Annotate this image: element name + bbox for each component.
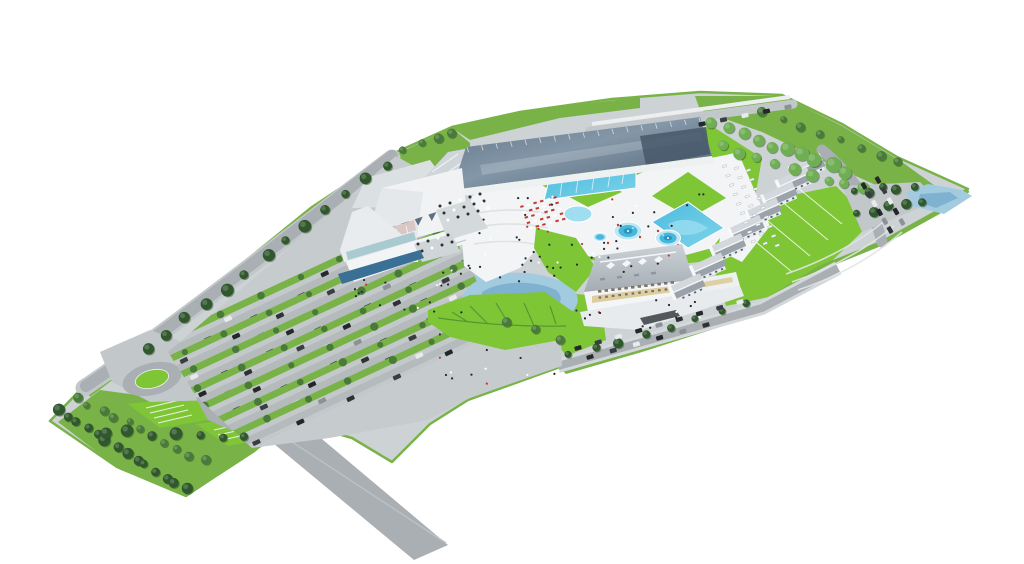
person-dot (630, 265, 632, 267)
person-dot (559, 266, 561, 268)
person-dot (551, 196, 553, 198)
person-dot (668, 304, 670, 306)
tree-highlight (743, 300, 746, 303)
hotel-window (665, 288, 668, 290)
hotel-window (657, 283, 660, 286)
table-dot (439, 205, 442, 208)
person-dot (603, 242, 605, 244)
person-dot (486, 383, 488, 385)
table-dot (417, 243, 420, 246)
person-dot (469, 267, 471, 269)
tree-highlight (74, 394, 78, 398)
tree-highlight (342, 191, 346, 195)
person-dot (548, 244, 550, 246)
tree-highlight (54, 405, 59, 410)
tree-highlight (614, 340, 619, 345)
person-dot (516, 236, 518, 238)
person-dot (440, 284, 442, 286)
tree-highlight (161, 440, 165, 444)
person-dot (478, 232, 480, 234)
tree-highlight (124, 449, 129, 454)
person-dot (647, 225, 649, 227)
person-dot (460, 273, 462, 275)
person-dot (610, 200, 612, 202)
person-dot (403, 308, 405, 310)
person-dot (481, 201, 483, 203)
tree-highlight (902, 200, 907, 205)
person-dot (620, 225, 622, 227)
tree-highlight (162, 331, 167, 336)
tree-highlight (828, 159, 835, 166)
tree-highlight (400, 147, 403, 150)
person-dot (589, 314, 591, 316)
tree-highlight (223, 285, 229, 291)
tree-highlight (808, 154, 815, 161)
tree-highlight (144, 345, 149, 350)
person-dot (361, 291, 363, 293)
hotel-window (638, 292, 641, 294)
person-dot (484, 368, 486, 370)
tree-highlight (171, 429, 177, 435)
person-dot (489, 237, 491, 239)
tree-highlight (300, 221, 306, 227)
tree-highlight (668, 325, 672, 329)
person-dot (698, 193, 700, 195)
person-dot (447, 283, 449, 285)
table-dot (447, 234, 450, 237)
tree-highlight (719, 141, 724, 146)
tree-highlight (164, 475, 168, 479)
person-dot (571, 244, 573, 246)
person-dot (450, 371, 452, 373)
person-dot (468, 265, 470, 267)
tree-highlight (912, 184, 915, 187)
tree-highlight (101, 407, 105, 411)
person-dot (668, 254, 670, 256)
person-dot (358, 292, 360, 294)
tree-highlight (557, 336, 561, 340)
tree-highlight (854, 211, 857, 214)
table-dot (479, 193, 482, 196)
tree-highlight (174, 446, 178, 450)
person-dot (615, 240, 617, 242)
tree-highlight (435, 135, 439, 139)
hotel-window (605, 296, 608, 298)
table-dot (441, 244, 444, 247)
person-dot (591, 257, 593, 259)
tree-highlight (565, 352, 568, 355)
tree-highlight (321, 206, 325, 210)
tree-highlight (781, 117, 784, 120)
tree-highlight (919, 199, 923, 203)
hotel-window (618, 288, 621, 291)
table-dot (463, 206, 466, 209)
tree-highlight (137, 426, 141, 430)
tree-highlight (170, 479, 175, 484)
tree-highlight (753, 154, 757, 158)
person-dot (649, 327, 651, 329)
tree-highlight (135, 457, 140, 462)
tree-highlight (740, 129, 745, 134)
tree-highlight (180, 313, 185, 318)
tree-highlight (758, 108, 762, 112)
person-dot (499, 276, 501, 278)
person-dot (584, 317, 586, 319)
person-dot (576, 263, 578, 265)
table-dot (473, 203, 476, 206)
tree-highlight (84, 403, 87, 406)
person-dot (598, 256, 600, 258)
person-dot (479, 266, 481, 268)
tree-highlight (807, 171, 813, 177)
tree-highlight (797, 124, 801, 128)
person-dot (686, 204, 688, 206)
tree-highlight (115, 444, 119, 448)
person-dot (599, 312, 601, 314)
hotel-window (658, 289, 661, 291)
tree-highlight (384, 163, 388, 167)
hotel-window (638, 285, 641, 288)
person-dot (552, 267, 554, 269)
person-dot (675, 311, 677, 313)
person-dot (556, 261, 558, 263)
tree-highlight (852, 188, 855, 191)
person-dot (526, 374, 528, 376)
hotel-window (631, 286, 634, 289)
tree-highlight (754, 136, 759, 141)
tree-highlight (790, 165, 796, 171)
tree-highlight (796, 148, 803, 155)
person-dot (612, 216, 614, 218)
hotel-window (624, 287, 627, 290)
tree-highlight (183, 484, 188, 489)
person-dot (551, 204, 553, 206)
hotel-window (598, 290, 601, 293)
tree-highlight (771, 160, 775, 164)
person-dot (581, 243, 583, 245)
tree-highlight (95, 431, 99, 435)
tree-highlight (870, 208, 875, 213)
person-dot (537, 228, 539, 230)
tree-highlight (878, 152, 882, 156)
tree-highlight (185, 453, 189, 457)
person-dot (530, 260, 532, 262)
person-dot (451, 377, 453, 379)
tree-highlight (127, 419, 130, 422)
person-dot (445, 374, 447, 376)
person-dot (655, 299, 657, 301)
tree-highlight (826, 178, 830, 182)
tree-highlight (241, 433, 245, 437)
site-plan-rendering (0, 0, 1024, 564)
tree-highlight (202, 456, 206, 460)
hotel-window (625, 293, 628, 295)
hotel-window (651, 290, 654, 292)
tree-highlight (725, 124, 730, 129)
hotel-window (605, 289, 608, 292)
hotel-window (618, 294, 621, 296)
tree-highlight (735, 149, 740, 154)
tree-highlight (840, 180, 844, 184)
tree-highlight (692, 316, 695, 319)
person-dot (363, 279, 365, 281)
tree-highlight (264, 251, 270, 257)
person-dot (632, 212, 634, 214)
tree-highlight (448, 130, 452, 134)
person-dot (486, 349, 488, 351)
tree-highlight (65, 414, 69, 418)
tree-highlight (419, 140, 422, 143)
person-dot (623, 271, 625, 273)
person-dot (694, 301, 696, 303)
tree-highlight (503, 318, 507, 322)
person-dot (603, 248, 605, 250)
tree-highlight (817, 131, 821, 135)
table-dot (469, 196, 472, 199)
person-dot (460, 311, 462, 313)
tree-highlight (782, 143, 788, 149)
tree-highlight (141, 461, 145, 465)
table-dot (477, 210, 480, 213)
tree-highlight (122, 426, 128, 432)
person-dot (470, 374, 472, 376)
person-dot (642, 325, 644, 327)
person-dot (436, 284, 438, 286)
hotel-window (651, 284, 654, 287)
tree-highlight (840, 168, 846, 174)
tree-highlight (892, 186, 897, 191)
person-dot (635, 205, 637, 207)
person-dot (539, 256, 541, 258)
table-dot (443, 212, 446, 215)
table-dot (459, 199, 462, 202)
person-dot (575, 309, 577, 311)
person-dot (653, 211, 655, 213)
table-dot (457, 216, 460, 219)
person-dot (518, 280, 520, 282)
hotel-window (671, 281, 674, 284)
person-dot (519, 357, 521, 359)
table-dot (487, 207, 490, 210)
table-dot (449, 202, 452, 205)
person-dot (527, 197, 529, 199)
tree-highlight (858, 145, 862, 149)
person-dot (699, 316, 701, 318)
tree-highlight (197, 432, 201, 436)
person-dot (671, 225, 673, 227)
person-dot (417, 307, 419, 309)
person-dot (354, 288, 356, 290)
tree-highlight (240, 271, 244, 275)
person-dot (429, 301, 431, 303)
person-dot (517, 197, 519, 199)
hotel-window (645, 291, 648, 293)
table-dot (437, 237, 440, 240)
person-dot (553, 373, 555, 375)
hotel-window (611, 288, 614, 291)
person-dot (553, 275, 555, 277)
tree-highlight (202, 300, 207, 305)
person-dot (433, 310, 435, 312)
tree-highlight (220, 435, 224, 439)
person-dot (611, 198, 613, 200)
hotel-window (644, 284, 647, 287)
person-dot (533, 251, 535, 253)
person-dot (450, 269, 452, 271)
person-dot (690, 305, 692, 307)
hotel-window (599, 296, 602, 298)
kiddie-pool (564, 206, 592, 222)
table-dot (451, 241, 454, 244)
circular-pool-3 (593, 233, 607, 242)
person-dot (524, 257, 526, 259)
tree-highlight (838, 137, 841, 140)
tree-highlight (361, 174, 366, 179)
tree-highlight (768, 143, 773, 148)
person-dot (524, 214, 526, 216)
person-dot (616, 247, 618, 249)
person-dot (355, 295, 357, 297)
tree-highlight (110, 414, 114, 418)
person-dot (547, 231, 549, 233)
person-dot (518, 239, 520, 241)
tree-highlight (894, 158, 898, 162)
person-dot (546, 266, 548, 268)
person-dot (384, 281, 386, 283)
tree-highlight (707, 119, 712, 124)
tree-highlight (85, 425, 89, 429)
tree-highlight (149, 432, 153, 436)
person-dot (442, 271, 444, 273)
person-dot (523, 271, 525, 273)
person-dot (483, 218, 485, 220)
tree-highlight (532, 326, 536, 330)
tree-highlight (102, 429, 107, 434)
person-dot (607, 256, 609, 258)
person-dot (675, 317, 677, 319)
person-dot (439, 333, 441, 335)
table-dot (447, 219, 450, 222)
tree-highlight (282, 237, 286, 241)
tree-highlight (643, 331, 647, 335)
person-dot (526, 226, 528, 228)
hotel-window (632, 292, 635, 294)
tree-highlight (72, 418, 76, 422)
person-dot (439, 357, 441, 359)
hotel-window (612, 295, 615, 297)
table-dot (453, 209, 456, 212)
person-dot (521, 264, 523, 266)
person-dot (365, 283, 367, 285)
person-dot (592, 252, 594, 254)
person-dot (702, 193, 704, 195)
tree-highlight (152, 469, 156, 473)
person-dot (538, 261, 540, 263)
person-dot (657, 263, 659, 265)
aerial-rendering-canvas (0, 0, 1024, 564)
table-dot (467, 213, 470, 216)
table-dot (427, 240, 430, 243)
hotel-window (664, 282, 667, 285)
person-dot (484, 253, 486, 255)
table-dot (431, 247, 434, 250)
person-dot (379, 304, 381, 306)
